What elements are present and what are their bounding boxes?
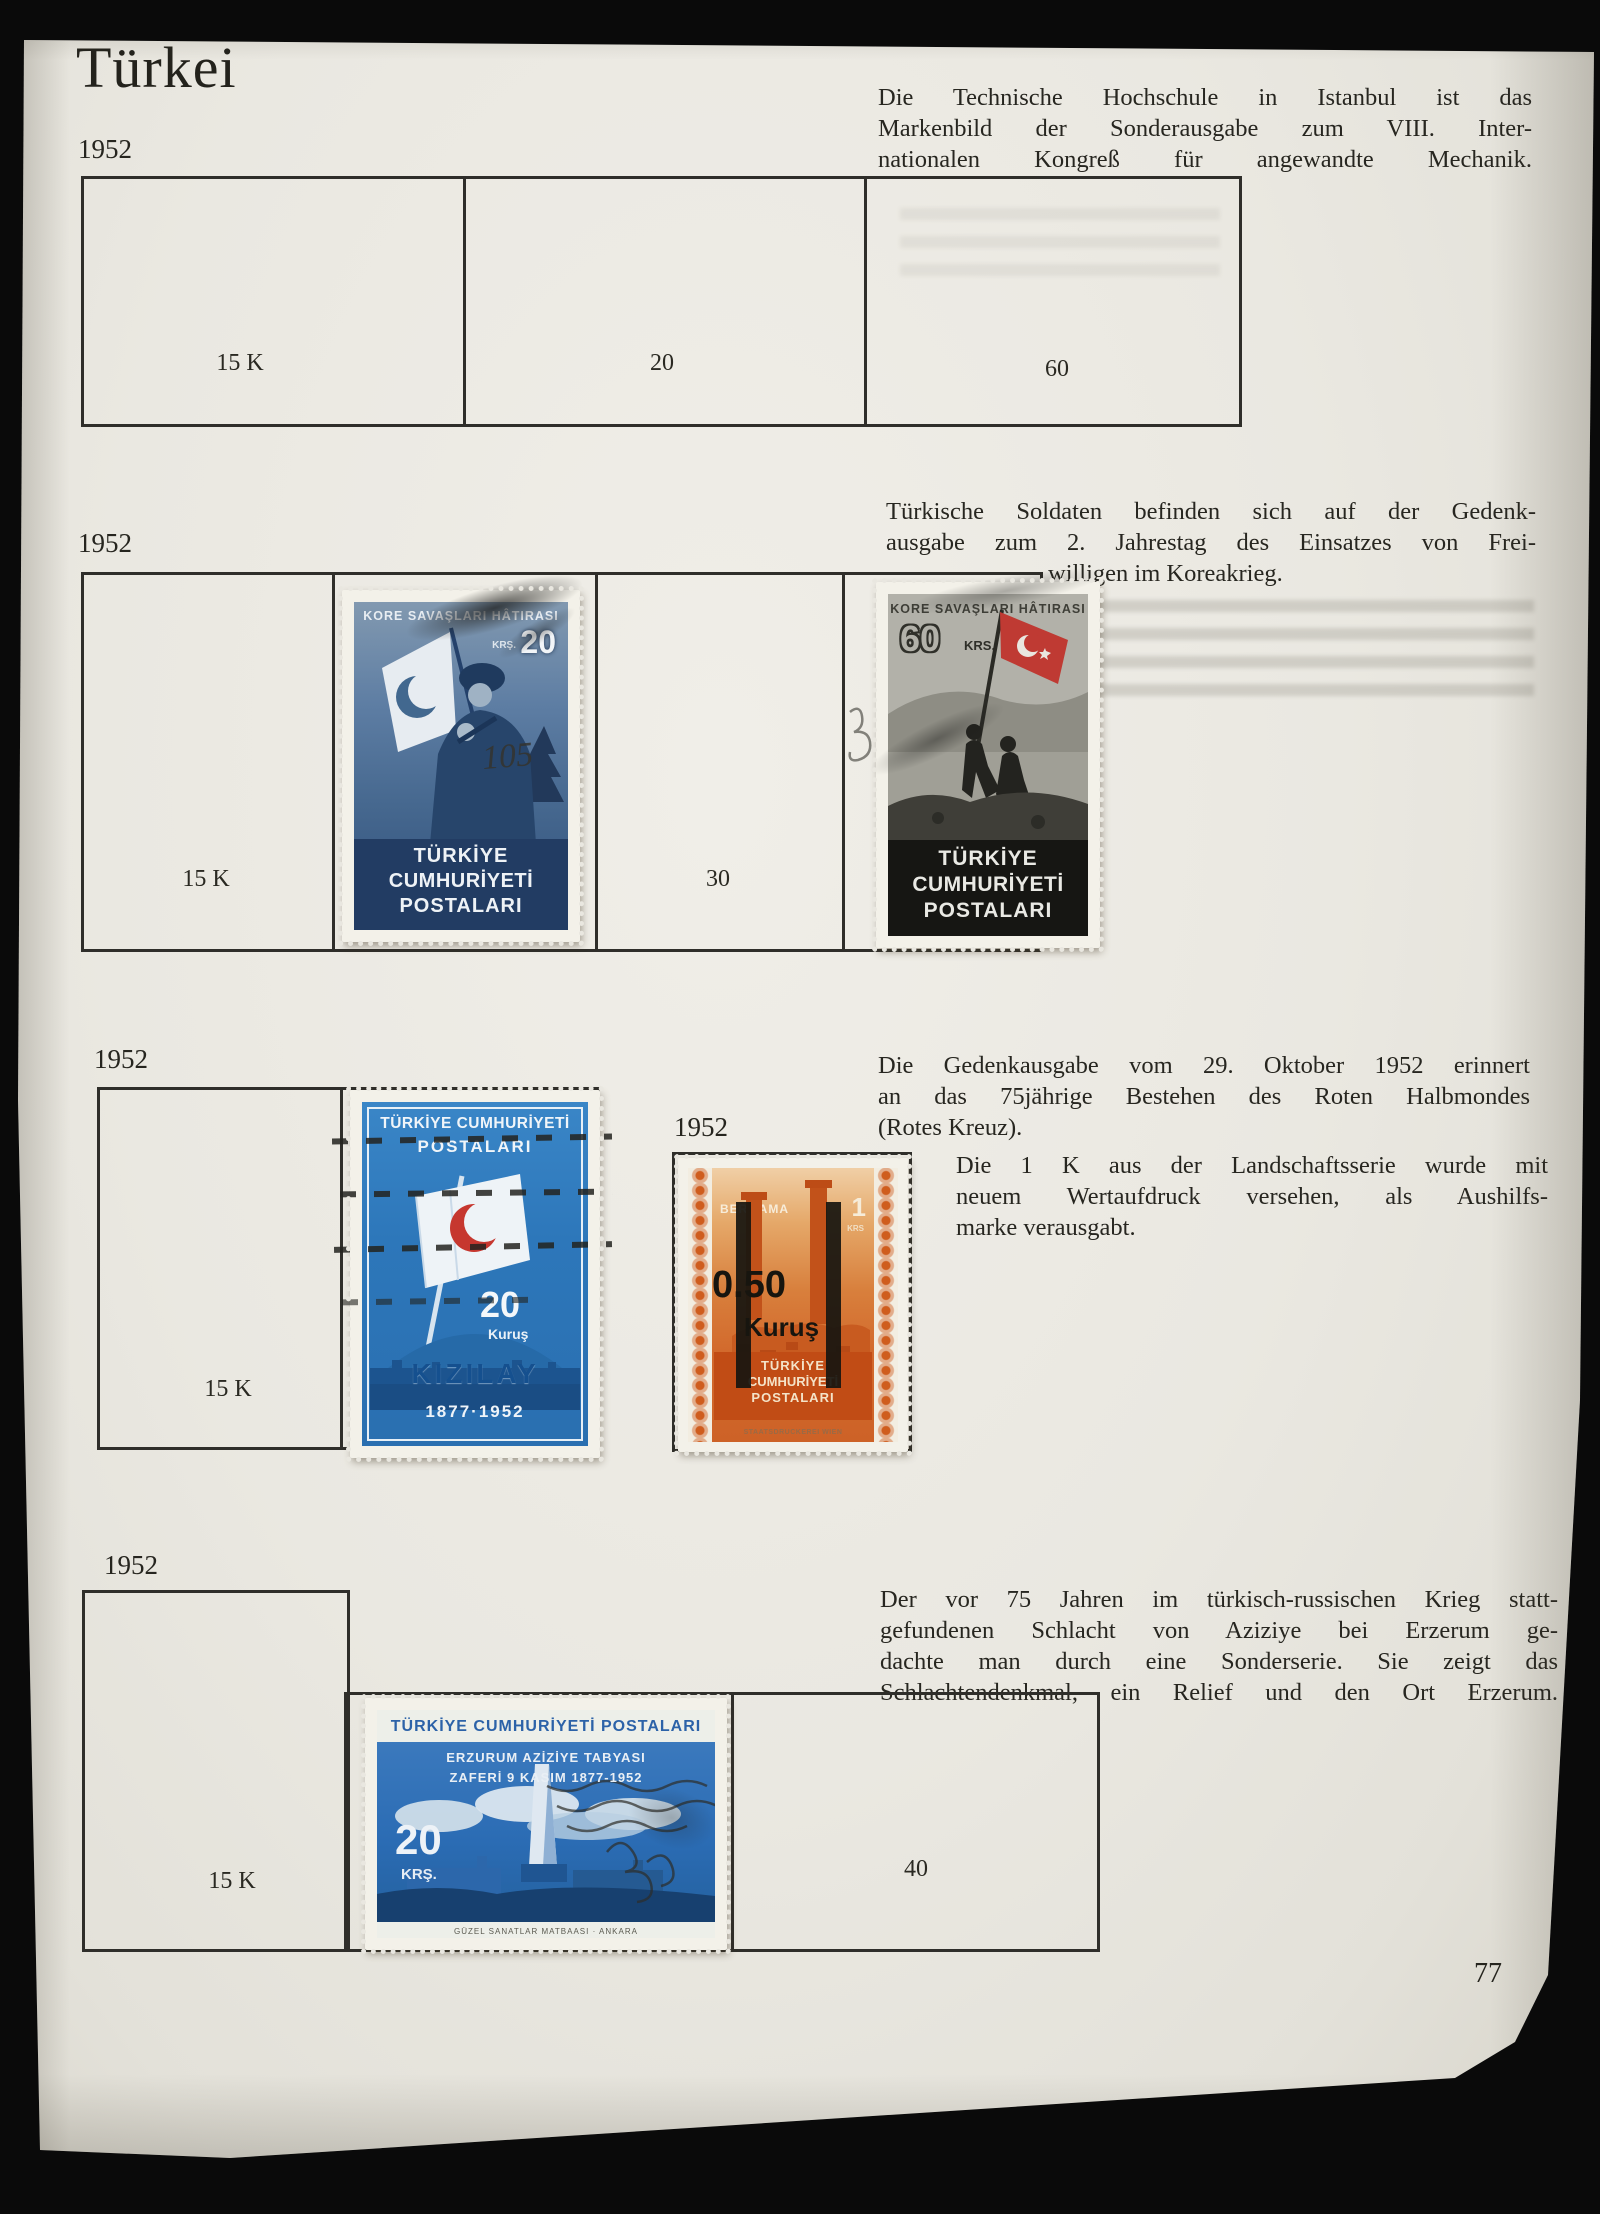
stamp-mount-box bbox=[81, 176, 1242, 427]
paragraph-line: Der vor 75 Jahren im türkisch-russischen… bbox=[880, 1584, 1558, 1615]
handwriting-mark bbox=[842, 702, 882, 782]
paragraph-line: Die Gedenkausgabe vom 29. Oktober 1952 e… bbox=[878, 1050, 1530, 1081]
stamp-caption: ZAFERİ 9 KASIM 1877-1952 bbox=[377, 1770, 715, 1785]
paragraph-line: Die 1 K aus der Landschaftsserie wurde m… bbox=[956, 1150, 1548, 1181]
paragraph-line: neuem Wertaufdruck versehen, als Aushilf… bbox=[956, 1181, 1548, 1212]
paragraph-line: dachte man durch eine Sonderserie. Sie z… bbox=[880, 1646, 1558, 1677]
stamp-design: BERGAMA 1 KRS TÜRK bbox=[688, 1168, 898, 1442]
overprint-currency: Kuruş bbox=[744, 1312, 819, 1343]
soldier-figure bbox=[1000, 736, 1016, 752]
soldier-figure bbox=[966, 724, 982, 740]
paragraph-line: ausgabe zum 2. Jahrestag des Einsatzes v… bbox=[886, 527, 1536, 558]
ghost-bleed-through bbox=[1042, 600, 1534, 706]
box-divider bbox=[864, 179, 867, 424]
overprint-value: 0.50 bbox=[712, 1264, 786, 1307]
box-divider bbox=[463, 179, 466, 424]
overprint-bar bbox=[826, 1202, 841, 1388]
paragraph-line: marke verausgabt. bbox=[956, 1212, 1548, 1243]
stamp-footer-line: CUMHURİYETİ bbox=[354, 869, 568, 894]
stamp-korea-60krs: KORE SAVAŞLARI HÂTIRASI 60 KRS. T bbox=[876, 582, 1100, 948]
page-title: Türkei bbox=[76, 34, 237, 101]
paragraph-line: Türkische Soldaten befinden sich auf der… bbox=[886, 496, 1536, 527]
stamp-scene: ERZURUM AZİZİYE TABYASI ZAFERİ 9 KASIM 1… bbox=[377, 1742, 715, 1922]
paragraph: Der vor 75 Jahren im türkisch-russischen… bbox=[880, 1584, 1558, 1708]
year-label: 1952 bbox=[78, 528, 132, 559]
stamp-erzurum-20krs: TÜRKİYE CUMHURİYETİ POSTALARI bbox=[365, 1698, 727, 1950]
stamp-footer-panel: TÜRKİYE CUMHURİYETİ POSTALARI bbox=[888, 840, 1088, 936]
foreground-rocks bbox=[888, 792, 1088, 846]
cancellation-mark: 105 bbox=[480, 736, 534, 778]
stamp-mount-box bbox=[82, 1590, 350, 1952]
soldier-flag-scene bbox=[354, 602, 568, 844]
paragraph-line: gefundenen Schlacht von Aziziye bei Erze… bbox=[880, 1615, 1558, 1646]
stamp-caption: ERZURUM AZİZİYE TABYASI bbox=[377, 1750, 715, 1765]
stamp-footer-panel: TÜRKİYE CUMHURİYETİ POSTALARI bbox=[354, 839, 568, 930]
stamp-design: TÜRKİYE CUMHURİYETİ POSTALARI bbox=[377, 1710, 715, 1938]
stamp-years: 1877·1952 bbox=[362, 1402, 588, 1422]
stamp-kizilay-20kurus: TÜRKİYE CUMHURİYETİ POSTALARI 20 Kuruş K… bbox=[350, 1090, 600, 1458]
stamp-currency: Kuruş bbox=[488, 1326, 528, 1342]
stamp-footer-line: TÜRKİYE bbox=[888, 846, 1088, 872]
paragraph-line: an das 75jährige Bestehen des Roten Halb… bbox=[878, 1081, 1530, 1112]
year-label: 1952 bbox=[94, 1044, 148, 1075]
stamp-design: KORE SAVAŞLARI HÂTIRASI KRŞ. 20 TÜRKİYE … bbox=[354, 602, 568, 930]
foreground bbox=[377, 1887, 715, 1922]
paragraph-line: Markenbild der Sonderausgabe zum VIII. I… bbox=[878, 113, 1532, 144]
year-label: 1952 bbox=[104, 1550, 158, 1581]
year-label: 1952 bbox=[78, 134, 132, 165]
flag-raising-scene bbox=[888, 594, 1088, 846]
stamp-value: 20 bbox=[395, 1816, 442, 1864]
paragraph: Die Gedenkausgabe vom 29. Oktober 1952 e… bbox=[878, 1050, 1530, 1143]
paragraph-line: nationalen Kongreß für angewandte Mechan… bbox=[878, 144, 1532, 175]
stamp-design: KORE SAVAŞLARI HÂTIRASI 60 KRS. T bbox=[888, 594, 1088, 936]
soldier-face bbox=[468, 683, 492, 707]
stamp-footer-line: POSTALARI bbox=[354, 894, 568, 919]
stamp-header: TÜRKİYE CUMHURİYETİ POSTALARI bbox=[377, 1718, 715, 1736]
year-label: 1952 bbox=[674, 1112, 728, 1143]
stamp-footer-line: CUMHURİYETİ bbox=[888, 872, 1088, 898]
box-divider bbox=[332, 575, 335, 949]
stamp-design: TÜRKİYE CUMHURİYETİ POSTALARI 20 Kuruş K… bbox=[362, 1102, 588, 1446]
box-divider bbox=[595, 575, 598, 949]
red-crescent-flag-scene bbox=[362, 1102, 588, 1446]
paragraph: Die 1 K aus der Landschaftsserie wurde m… bbox=[956, 1150, 1548, 1243]
paragraph-line: (Rotes Kreuz). bbox=[878, 1112, 1530, 1143]
stamp-name: KIZILAY bbox=[362, 1358, 588, 1390]
stamp-currency: KRŞ. bbox=[401, 1866, 437, 1883]
album-photo: { "page": { "title": "Türkei", "number":… bbox=[0, 0, 1600, 2214]
stamp-korea-20krs: KORE SAVAŞLARI HÂTIRASI KRŞ. 20 TÜRKİYE … bbox=[342, 590, 580, 942]
printer-imprint: GÜZEL SANATLAR MATBAASI · ANKARA bbox=[377, 1927, 715, 1936]
page-number: 77 bbox=[1474, 1958, 1502, 1990]
album-page: Türkei 1952 Die Technische Hochschule in… bbox=[0, 0, 1600, 2214]
monument-base bbox=[521, 1864, 567, 1882]
paragraph: Die Technische Hochschule in Istanbul is… bbox=[878, 82, 1532, 175]
stamp-bergama-overprint: BERGAMA 1 KRS TÜRK bbox=[678, 1158, 908, 1452]
stamp-footer-line: POSTALARI bbox=[888, 898, 1088, 924]
overprint: 0.50 Kuruş bbox=[688, 1168, 898, 1442]
paragraph-line: Die Technische Hochschule in Istanbul is… bbox=[878, 82, 1532, 113]
stamp-value: 20 bbox=[480, 1284, 520, 1326]
stamp-footer-line: TÜRKİYE bbox=[354, 844, 568, 869]
box-divider bbox=[731, 1695, 734, 1949]
